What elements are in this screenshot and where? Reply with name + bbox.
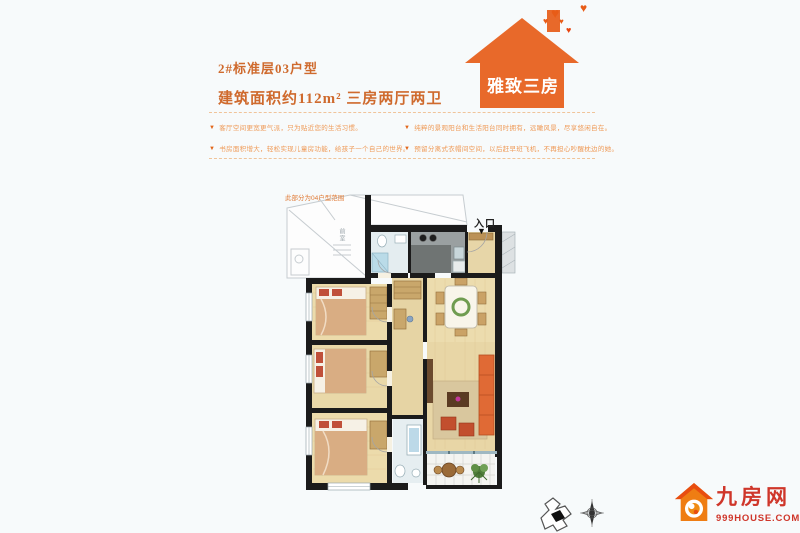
logo-text: 九房网 999HOUSE.COM xyxy=(716,481,800,524)
bullet-arrow-icon: ▼ xyxy=(209,146,215,152)
dashed-divider-bottom xyxy=(209,158,595,159)
floor-plan-drawing xyxy=(283,189,517,521)
feature-item: ▼纯粹的景观阳台和生活阳台同时拥有，远瞰风景，尽享悠闲自在。 xyxy=(404,122,611,132)
feature-item: ▼客厅空间更宽更气派，只为贴近您的生活习惯。 xyxy=(209,122,362,132)
page: 2#标准层03户型 建筑面积约112m² 三房两厅两卫 ▼客厅空间更宽更气派，只… xyxy=(0,0,800,533)
logo-name: 九房网 xyxy=(716,481,800,511)
logo-house-icon xyxy=(675,482,713,522)
header: 2#标准层03户型 建筑面积约112m² 三房两厅两卫 xyxy=(218,58,442,108)
bullet-arrow-icon: ▼ xyxy=(404,146,410,152)
site-logo[interactable]: 九房网 999HOUSE.COM xyxy=(660,480,800,532)
entrance-arrow-icon: ▼ xyxy=(477,226,486,236)
logo-domain: 999HOUSE.COM xyxy=(716,513,800,524)
feature-text: 纯粹的景观阳台和生活阳台同时拥有，远瞰风景，尽享悠闲自在。 xyxy=(414,125,611,132)
bullet-arrow-icon: ▼ xyxy=(404,125,410,131)
feature-item: ▼预留分离式衣帽间空间，以后赶早班飞机，不再担心吵醒枕边的她。 xyxy=(404,143,618,153)
house-badge: 雅致三房 ♥ ♥ ♥ ♥ ♥ xyxy=(463,6,608,108)
feature-item: ▼书房面积增大，轻松实现儿童房功能，给孩子一个自己的世界。 xyxy=(209,143,410,153)
plan-note: 此部分为04户型范围 xyxy=(285,192,344,202)
heart-icon: ♥ xyxy=(559,18,564,26)
badge-label: 雅致三房 xyxy=(481,72,565,97)
dashed-divider-top xyxy=(209,112,595,113)
feature-text: 客厅空间更宽更气派，只为贴近您的生活习惯。 xyxy=(219,125,362,132)
heart-icon: ♥ xyxy=(580,2,587,14)
floor-plan: 此部分为04户型范围 入口 ▼ 前室 xyxy=(283,189,517,521)
compass-icon xyxy=(577,497,607,529)
lobby-label: 前室 xyxy=(337,228,346,242)
heart-icon: ♥ xyxy=(543,17,548,26)
bullet-arrow-icon: ▼ xyxy=(209,125,215,131)
site-keyplan-icon xyxy=(527,496,579,533)
unit-subtitle: 建筑面积约112m² 三房两厅两卫 xyxy=(218,87,442,108)
feature-text: 预留分离式衣帽间空间，以后赶早班飞机，不再担心吵醒枕边的她。 xyxy=(414,146,618,153)
feature-text: 书房面积增大，轻松实现儿童房功能，给孩子一个自己的世界。 xyxy=(219,146,409,153)
unit-title: 2#标准层03户型 xyxy=(218,58,442,77)
heart-icon: ♥ xyxy=(566,26,571,35)
